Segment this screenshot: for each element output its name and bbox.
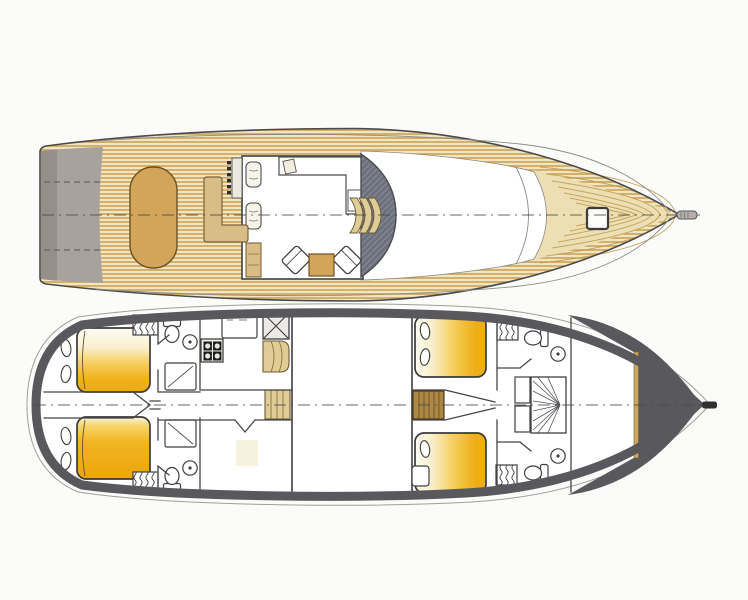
wardrobe-fwd-starboard	[496, 465, 517, 485]
double-bed-aft-starboard	[77, 417, 150, 479]
stove-icon	[201, 339, 223, 362]
stem-fitting	[702, 402, 717, 409]
yacht-deck-plans	[0, 0, 748, 600]
bedside-locker	[412, 466, 429, 486]
sink-icon	[551, 449, 565, 463]
toilet-icon	[525, 330, 549, 347]
yacht-floorplan-page	[0, 0, 748, 600]
coffee-table	[309, 254, 334, 276]
bar-cabinet	[246, 243, 261, 277]
bowsprit	[677, 211, 697, 219]
counter-item	[283, 159, 296, 174]
toilet-icon	[164, 468, 181, 492]
toilet-icon	[164, 319, 181, 343]
helm-seat-aft	[246, 203, 261, 229]
sink-icon	[183, 461, 197, 475]
sink-icon	[551, 347, 565, 361]
main-deck-plan	[40, 129, 700, 302]
sink-icon	[183, 335, 197, 349]
cockpit-table	[130, 167, 177, 268]
guest-cabin-starboard	[412, 433, 486, 493]
deck-saloon	[227, 156, 363, 279]
lower-deck-plan	[27, 304, 717, 505]
helm-seat-fwd	[246, 162, 261, 187]
guest-cabin-port	[415, 316, 486, 377]
double-bed-aft-port	[77, 328, 150, 392]
curved-stairs	[263, 341, 289, 372]
deck-hatch	[587, 208, 608, 229]
mid-cabin-berth	[236, 440, 258, 466]
